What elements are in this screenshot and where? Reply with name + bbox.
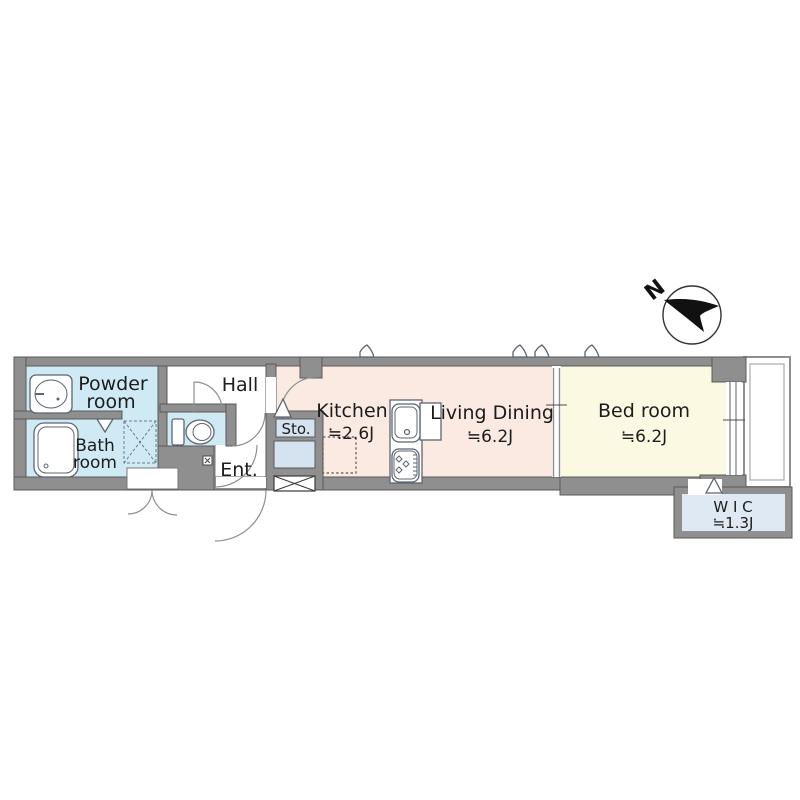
entrance-label: Ent. [220, 459, 258, 481]
door-stop-icon [203, 456, 212, 465]
kitchen-label: Kitchen [316, 400, 387, 422]
utility-door-arc-right [152, 490, 177, 515]
balcony [744, 357, 790, 487]
stove-icon [392, 449, 419, 482]
toilet-icon [172, 419, 214, 445]
washer-space-icon [124, 421, 156, 463]
utility-door-opening [127, 468, 178, 489]
kitchen-door-opening [266, 377, 276, 413]
wall-toilet-top [160, 404, 236, 412]
shoe-box [274, 441, 315, 468]
powder-sink-icon [30, 375, 72, 413]
vent-window-icon [513, 345, 527, 357]
living-dining-label: Living Dining [430, 402, 554, 424]
bath-room-label-2: room [73, 453, 117, 473]
vent-window-icon [360, 345, 374, 357]
bedroom-label: Bed room [598, 400, 690, 422]
balcony-outer [744, 357, 790, 487]
powder-room-label-2: room [86, 391, 135, 413]
vent-window-icon [535, 345, 549, 357]
entrance-door-arc-outer [215, 490, 266, 541]
kitchen-size-label: ≒2.6J [328, 424, 374, 444]
bathtub-icon [34, 423, 78, 477]
bedroom-size-label: ≒6.2J [621, 427, 667, 447]
compass: N [640, 275, 721, 344]
bedroom-window-strip [726, 382, 742, 475]
wic-size-label: ≒1.3J [713, 514, 754, 532]
utility-door-arc-left [128, 490, 152, 514]
hall-label: Hall [222, 374, 259, 396]
wall-toilet-right [226, 404, 236, 446]
vent-windows [360, 345, 599, 357]
vent-window-icon [585, 345, 599, 357]
floor-plan-page: N Powder room Bath room Hall Sto. Ent. K… [0, 0, 800, 800]
wall-kitchen-top-chunk [300, 357, 322, 378]
wall-bedroom-top-right [712, 357, 746, 382]
wall-top [14, 357, 746, 366]
storage-label: Sto. [281, 420, 310, 438]
floor-plan-canvas: N Powder room Bath room Hall Sto. Ent. K… [0, 0, 800, 800]
wall-left [14, 357, 26, 490]
kitchen-sink-icon [392, 404, 420, 442]
living-dining-size-label: ≒6.2J [467, 427, 513, 447]
